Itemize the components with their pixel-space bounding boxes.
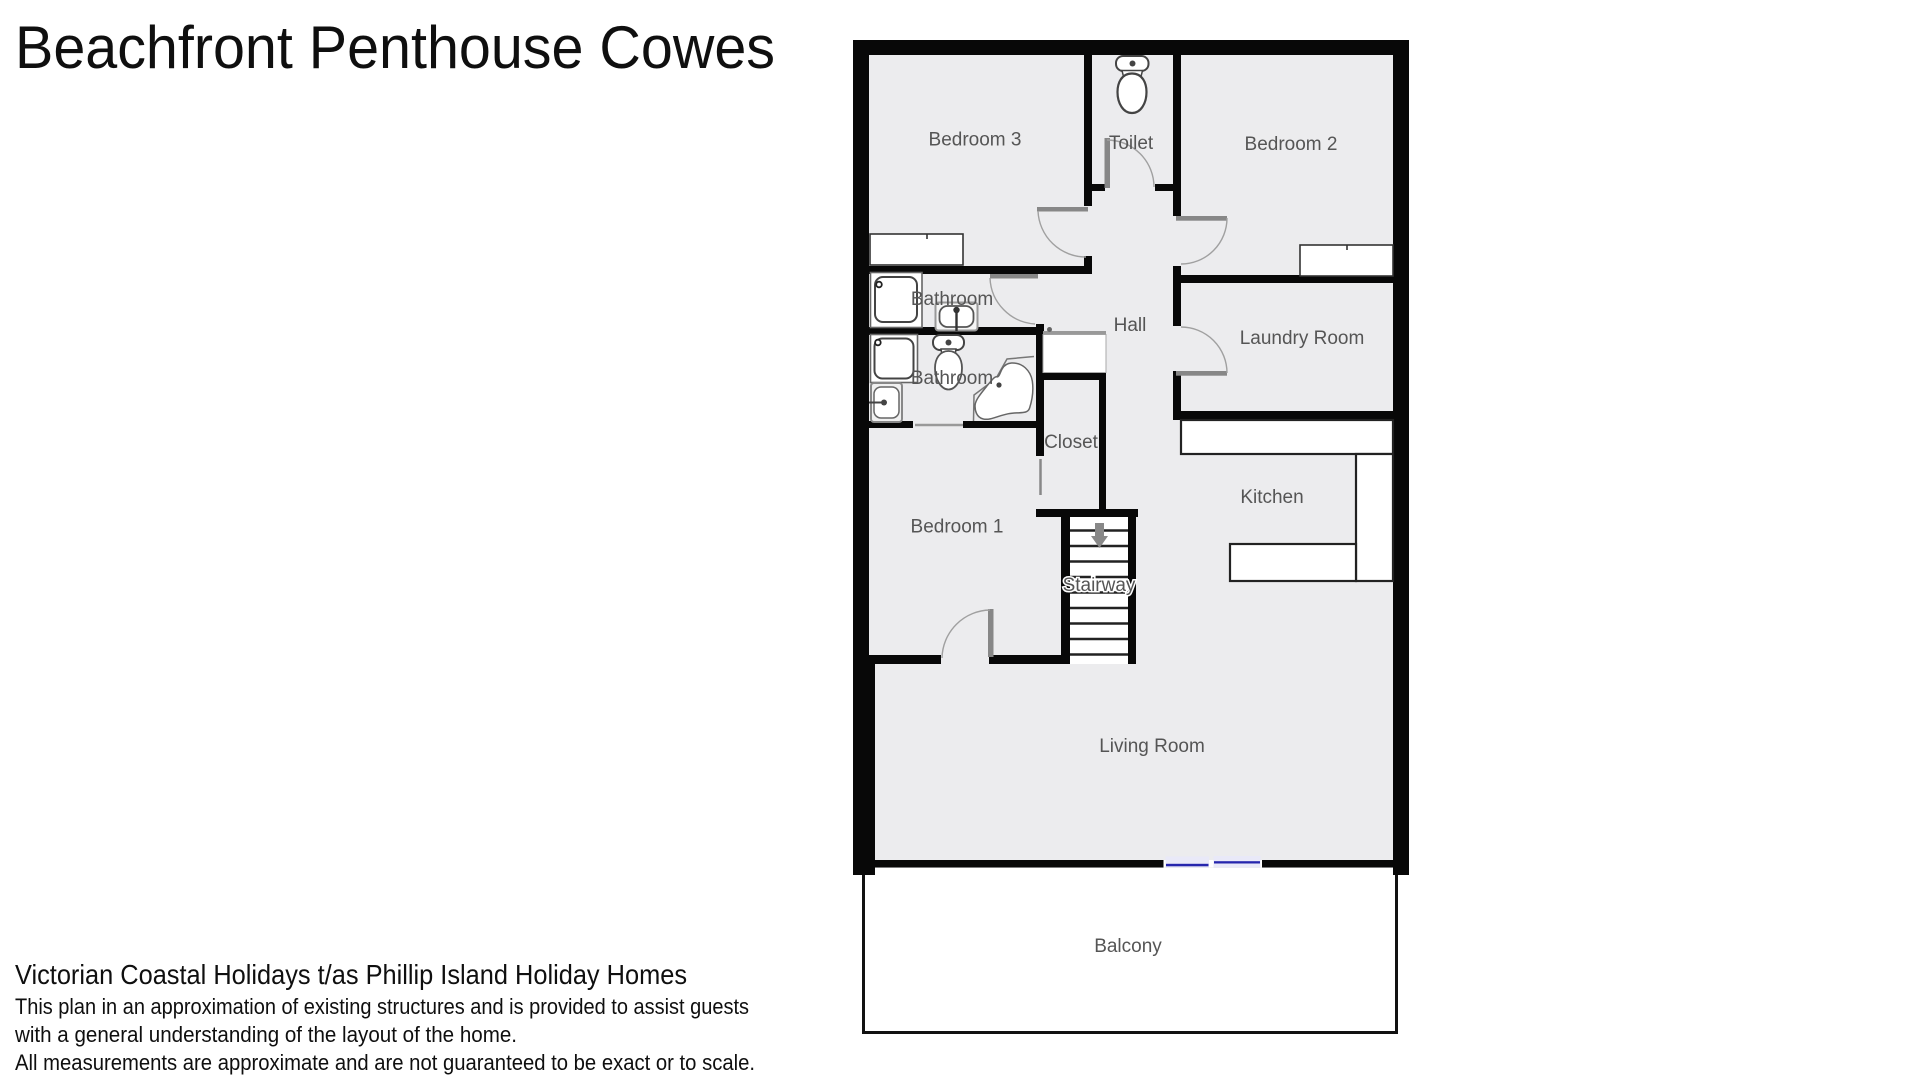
svg-text:This plan in an approximation: This plan in an approximation of existin… — [15, 994, 749, 1019]
svg-text:Bedroom 3: Bedroom 3 — [929, 130, 1022, 151]
svg-text:Laundry Room: Laundry Room — [1240, 328, 1365, 349]
svg-text:Living Room: Living Room — [1099, 736, 1205, 757]
svg-text:with a general understanding o: with a general understanding of the layo… — [14, 1022, 517, 1047]
svg-text:Bathroom: Bathroom — [911, 289, 993, 310]
svg-text:Stairway: Stairway — [1063, 575, 1136, 596]
svg-text:Toilet: Toilet — [1109, 133, 1154, 154]
svg-text:Victorian Coastal Holidays t/a: Victorian Coastal Holidays t/as Phillip … — [15, 959, 687, 990]
svg-text:All measurements are approxima: All measurements are approximate and are… — [15, 1050, 755, 1075]
svg-text:Closet: Closet — [1044, 432, 1099, 453]
svg-text:Kitchen: Kitchen — [1240, 487, 1303, 508]
svg-text:Hall: Hall — [1114, 315, 1147, 336]
svg-text:Bathroom: Bathroom — [911, 368, 993, 389]
svg-text:Beachfront Penthouse Cowes: Beachfront Penthouse Cowes — [15, 14, 775, 81]
svg-text:Balcony: Balcony — [1094, 936, 1162, 957]
svg-text:Bedroom 1: Bedroom 1 — [911, 517, 1004, 538]
svg-text:Bedroom 2: Bedroom 2 — [1245, 134, 1338, 155]
